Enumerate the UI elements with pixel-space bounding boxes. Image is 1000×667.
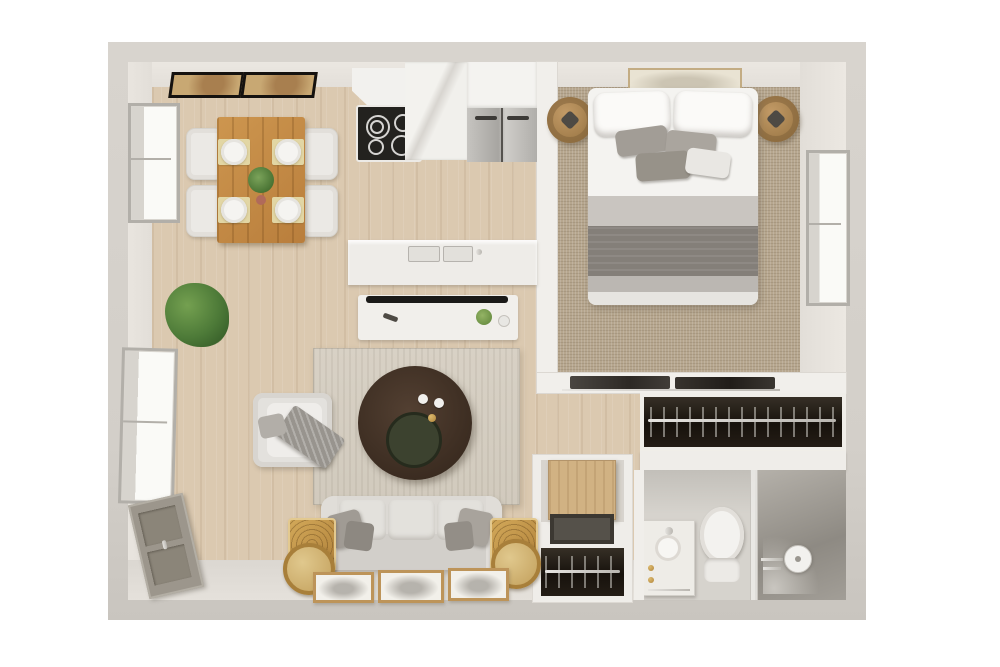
window-mullion bbox=[809, 223, 841, 225]
double-bed bbox=[588, 88, 758, 305]
cabinet-panel-bottom bbox=[147, 544, 192, 586]
dining-window bbox=[128, 103, 180, 223]
nightstand-right bbox=[753, 96, 799, 142]
sofa-pillow-right-2 bbox=[444, 521, 475, 552]
clothes-rod bbox=[545, 570, 620, 573]
apartment-floor-plan bbox=[108, 42, 866, 620]
kitchen-island-counter bbox=[348, 240, 537, 285]
toilet-bowl bbox=[700, 507, 744, 563]
shower-enclosure bbox=[755, 470, 846, 600]
upper-cabinet bbox=[467, 62, 537, 110]
clothes-rod bbox=[648, 419, 836, 422]
cup bbox=[434, 398, 444, 408]
window-mullion bbox=[123, 420, 167, 423]
nightstand-decor bbox=[766, 109, 786, 129]
closet-dark-shelf bbox=[550, 514, 614, 544]
closet-sliding-door-left bbox=[570, 376, 670, 389]
shower-head-center bbox=[795, 556, 801, 562]
dinner-plate bbox=[221, 139, 247, 165]
sofa-pillow-left-2 bbox=[343, 520, 375, 552]
vanity-sink bbox=[643, 520, 695, 596]
dining-wall-art-1 bbox=[168, 72, 245, 98]
tv-flatscreen bbox=[366, 296, 508, 303]
fridge-handle-left bbox=[475, 116, 497, 120]
accent-pillow-white bbox=[684, 147, 731, 179]
dining-table bbox=[217, 117, 305, 243]
burner-small bbox=[368, 139, 384, 155]
shower-valve bbox=[763, 567, 781, 570]
cup bbox=[418, 394, 428, 404]
bathroom-left-wall bbox=[634, 470, 644, 600]
console-plant bbox=[476, 309, 492, 325]
hallway-closet-unit bbox=[533, 455, 632, 602]
dinner-plate bbox=[275, 197, 301, 223]
dining-wall-art-2 bbox=[240, 72, 318, 98]
shower-glass-partition bbox=[750, 470, 758, 600]
sliding-door-track bbox=[562, 389, 780, 391]
fridge-handle-right bbox=[507, 116, 529, 120]
towel-bar bbox=[648, 589, 690, 591]
media-console bbox=[358, 295, 518, 340]
round-coffee-table bbox=[358, 366, 472, 480]
sofa-cushion bbox=[388, 500, 435, 540]
accent-pillow bbox=[635, 150, 691, 182]
bed-foot-duvet bbox=[588, 292, 758, 305]
leaning-floor-art-2 bbox=[378, 570, 444, 603]
floor-plan-screenshot bbox=[0, 0, 1000, 667]
shower-fixture-bar bbox=[761, 558, 783, 561]
decor-utensil bbox=[383, 313, 399, 323]
dinner-plate bbox=[221, 197, 247, 223]
three-seat-sofa bbox=[321, 496, 502, 570]
closet-sliding-door-right bbox=[675, 377, 775, 389]
nightstand-left bbox=[547, 97, 593, 143]
toilet-tank bbox=[704, 558, 740, 582]
bed-sheet-fold bbox=[588, 196, 758, 228]
sink-basin bbox=[655, 535, 681, 561]
island-faucet bbox=[476, 249, 482, 255]
glass-decor bbox=[498, 315, 510, 327]
closet-bottom-shelf bbox=[640, 451, 846, 470]
hanging-clothes bbox=[650, 407, 834, 437]
burner-ring bbox=[370, 120, 384, 134]
hallway-closet-lower-opening bbox=[541, 548, 624, 596]
sink-basin-right bbox=[443, 246, 473, 262]
small-gold-decor bbox=[428, 414, 436, 422]
gold-accessory bbox=[648, 577, 654, 583]
gold-soap-dispenser bbox=[648, 565, 654, 571]
armchair bbox=[253, 393, 332, 467]
wardrobe-closet bbox=[640, 393, 846, 451]
dining-chair-top-right bbox=[300, 128, 338, 180]
dining-chair-bottom-right bbox=[300, 185, 338, 237]
bedroom-window bbox=[806, 150, 850, 306]
gray-blanket bbox=[588, 226, 758, 278]
refrigerator bbox=[467, 108, 537, 162]
nightstand-decor bbox=[560, 110, 580, 130]
bathroom bbox=[640, 470, 846, 600]
fridge-door-split bbox=[501, 108, 503, 162]
leaning-floor-art-1 bbox=[313, 572, 374, 603]
dinner-plate bbox=[275, 139, 301, 165]
marble-counter bbox=[405, 62, 470, 160]
small-vase bbox=[256, 195, 266, 205]
faucet bbox=[665, 527, 673, 535]
bedroom-bottom-wall bbox=[537, 373, 846, 393]
shower-head bbox=[784, 545, 812, 573]
centerpiece-plant bbox=[248, 167, 274, 193]
window-mullion bbox=[131, 158, 171, 160]
wardrobe-interior bbox=[644, 397, 842, 447]
living-window bbox=[118, 347, 178, 504]
leaning-floor-art-3 bbox=[448, 568, 509, 601]
cabinet-panel-top bbox=[138, 505, 183, 547]
open-wood-closet-door bbox=[548, 460, 616, 520]
sink-basin-left bbox=[408, 246, 440, 262]
